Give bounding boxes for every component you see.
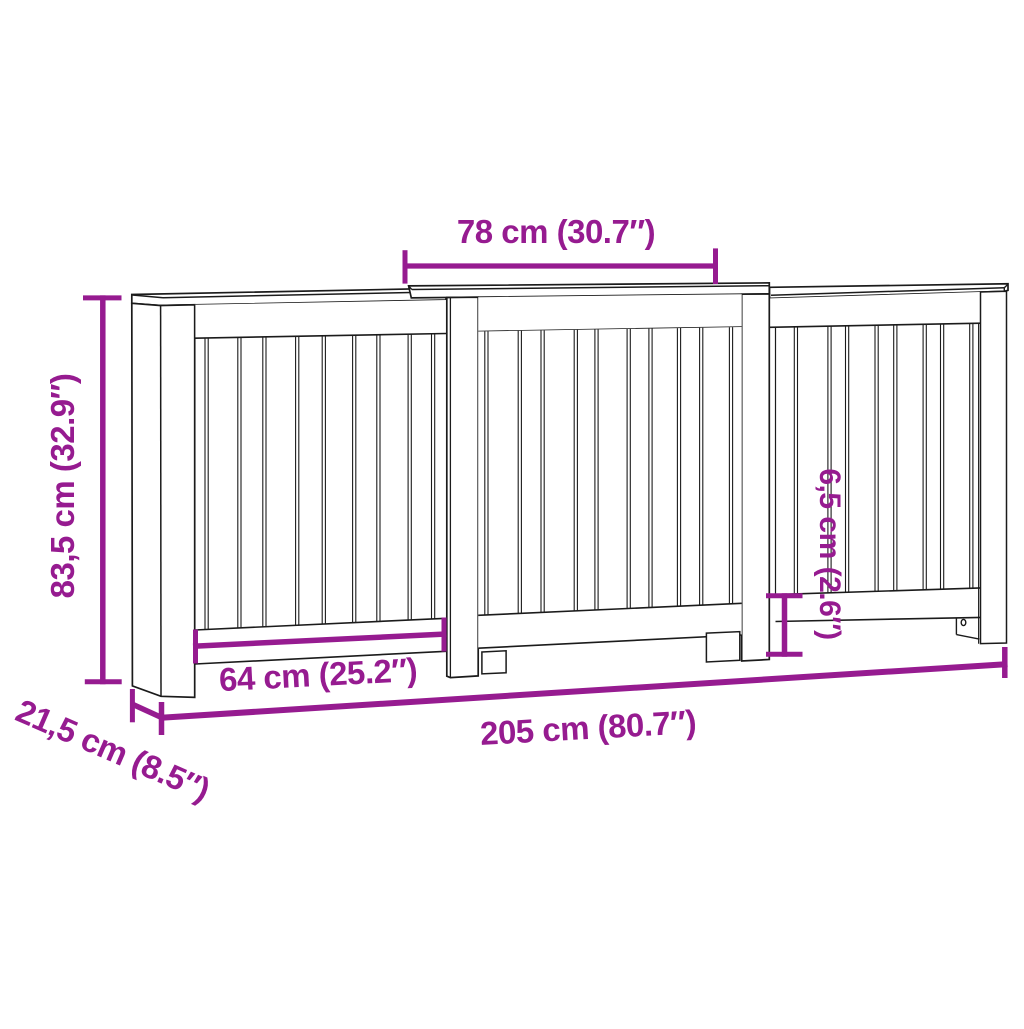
- svg-text:78 cm (30.7″): 78 cm (30.7″): [457, 213, 655, 250]
- svg-text:6,5 cm (2.6″): 6,5 cm (2.6″): [813, 468, 846, 639]
- svg-text:83,5 cm (32.9″): 83,5 cm (32.9″): [44, 374, 81, 599]
